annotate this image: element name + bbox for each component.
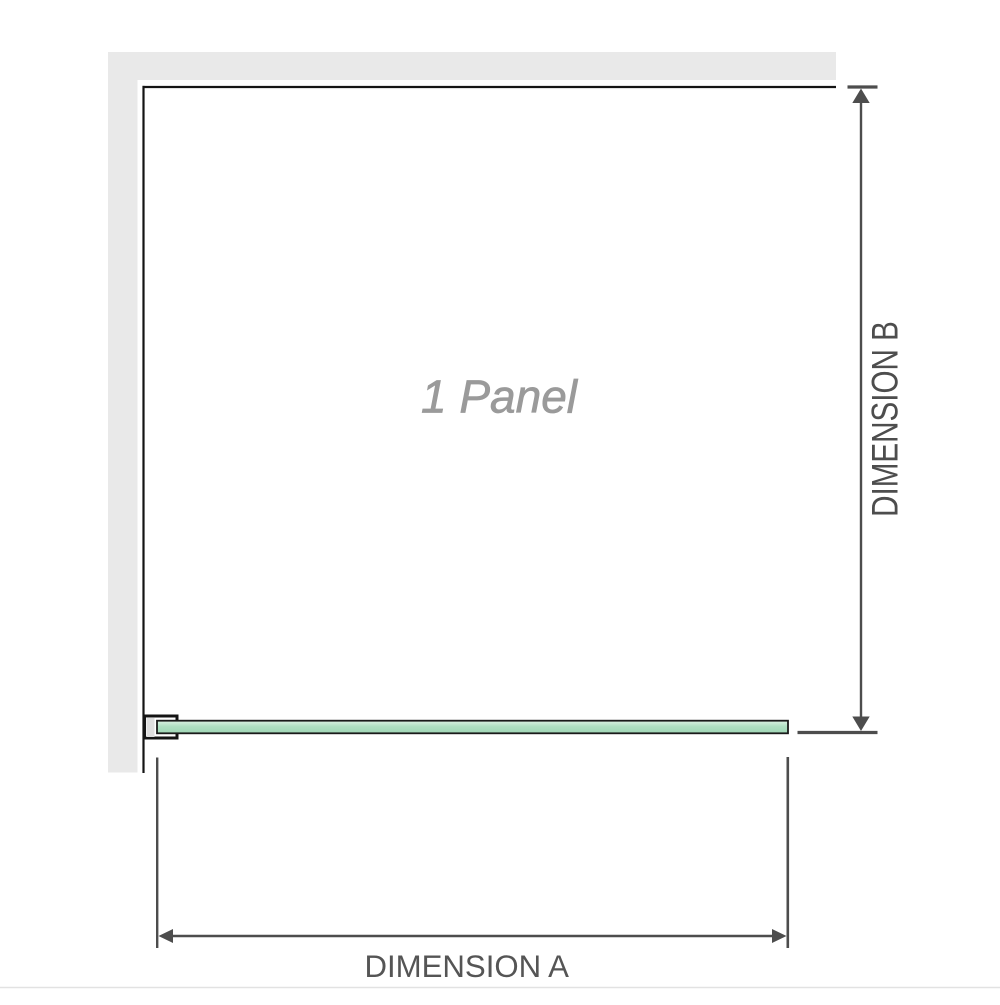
svg-text:DIMENSION B: DIMENSION B <box>865 321 906 517</box>
svg-text:DIMENSION A: DIMENSION A <box>364 949 569 984</box>
svg-text:1 Panel: 1 Panel <box>421 371 579 423</box>
